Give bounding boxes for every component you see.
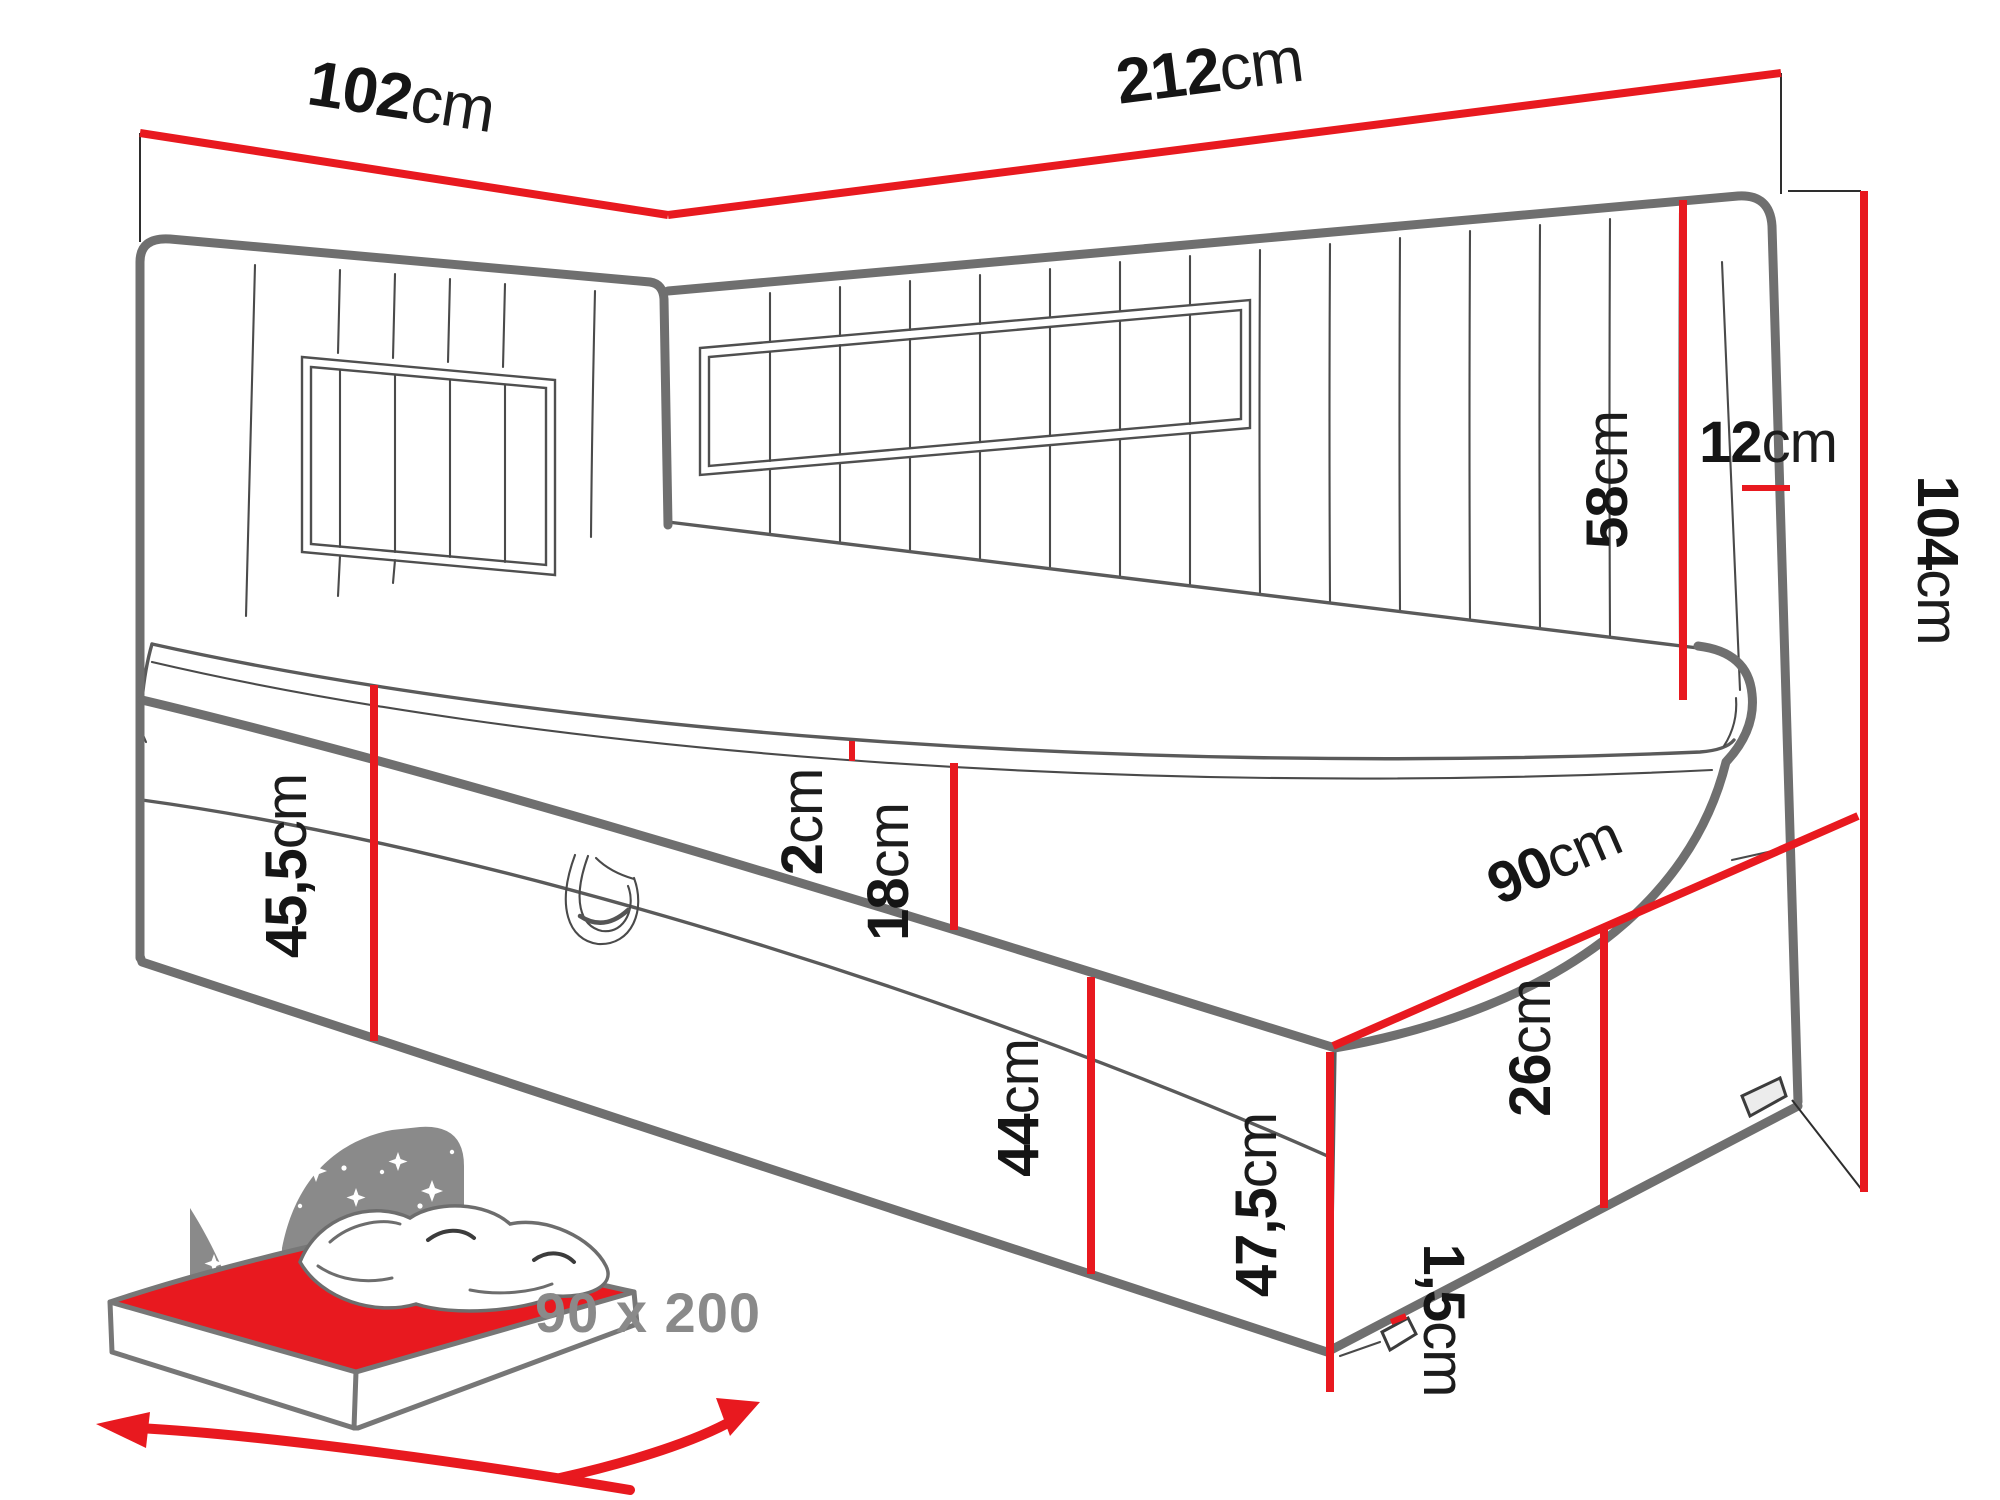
bed-size-icon: 90 x 200	[96, 1127, 761, 1490]
size-arrows	[96, 1398, 760, 1490]
dim-102-label: 102cm	[303, 46, 499, 146]
dimension-212: 212cm	[668, 23, 1861, 215]
dim-47-5-label: 47,5cm	[1224, 1113, 1289, 1297]
dim-104-label: 104cm	[1905, 475, 1970, 644]
dim-58-label: 58cm	[1575, 411, 1640, 549]
dim-18-label: 18cm	[856, 803, 921, 941]
dim-12-label: 12cm	[1699, 410, 1837, 475]
dim-45-5-label: 45,5cm	[254, 774, 319, 958]
dimension-102: 102cm	[140, 46, 668, 242]
bed-dimension-diagram: 102cm 212cm 104cm 58cm 12cm 2cm	[0, 0, 2000, 1500]
dim-1-5-label: 1,5cm	[1411, 1244, 1476, 1397]
size-badge: 90 x 200	[535, 1281, 761, 1344]
dimension-104: 104cm	[1864, 191, 1970, 1192]
dim-44-label: 44cm	[986, 1039, 1051, 1177]
dim-26-label: 26cm	[1498, 979, 1563, 1117]
dim-2-label: 2cm	[770, 769, 835, 876]
diagram-canvas: 102cm 212cm 104cm 58cm 12cm 2cm	[0, 0, 2000, 1500]
length-arrow	[560, 1416, 740, 1478]
dim-102-line	[140, 133, 668, 215]
floor-line	[1792, 1100, 1862, 1190]
dim-212-label: 212cm	[1112, 23, 1307, 118]
